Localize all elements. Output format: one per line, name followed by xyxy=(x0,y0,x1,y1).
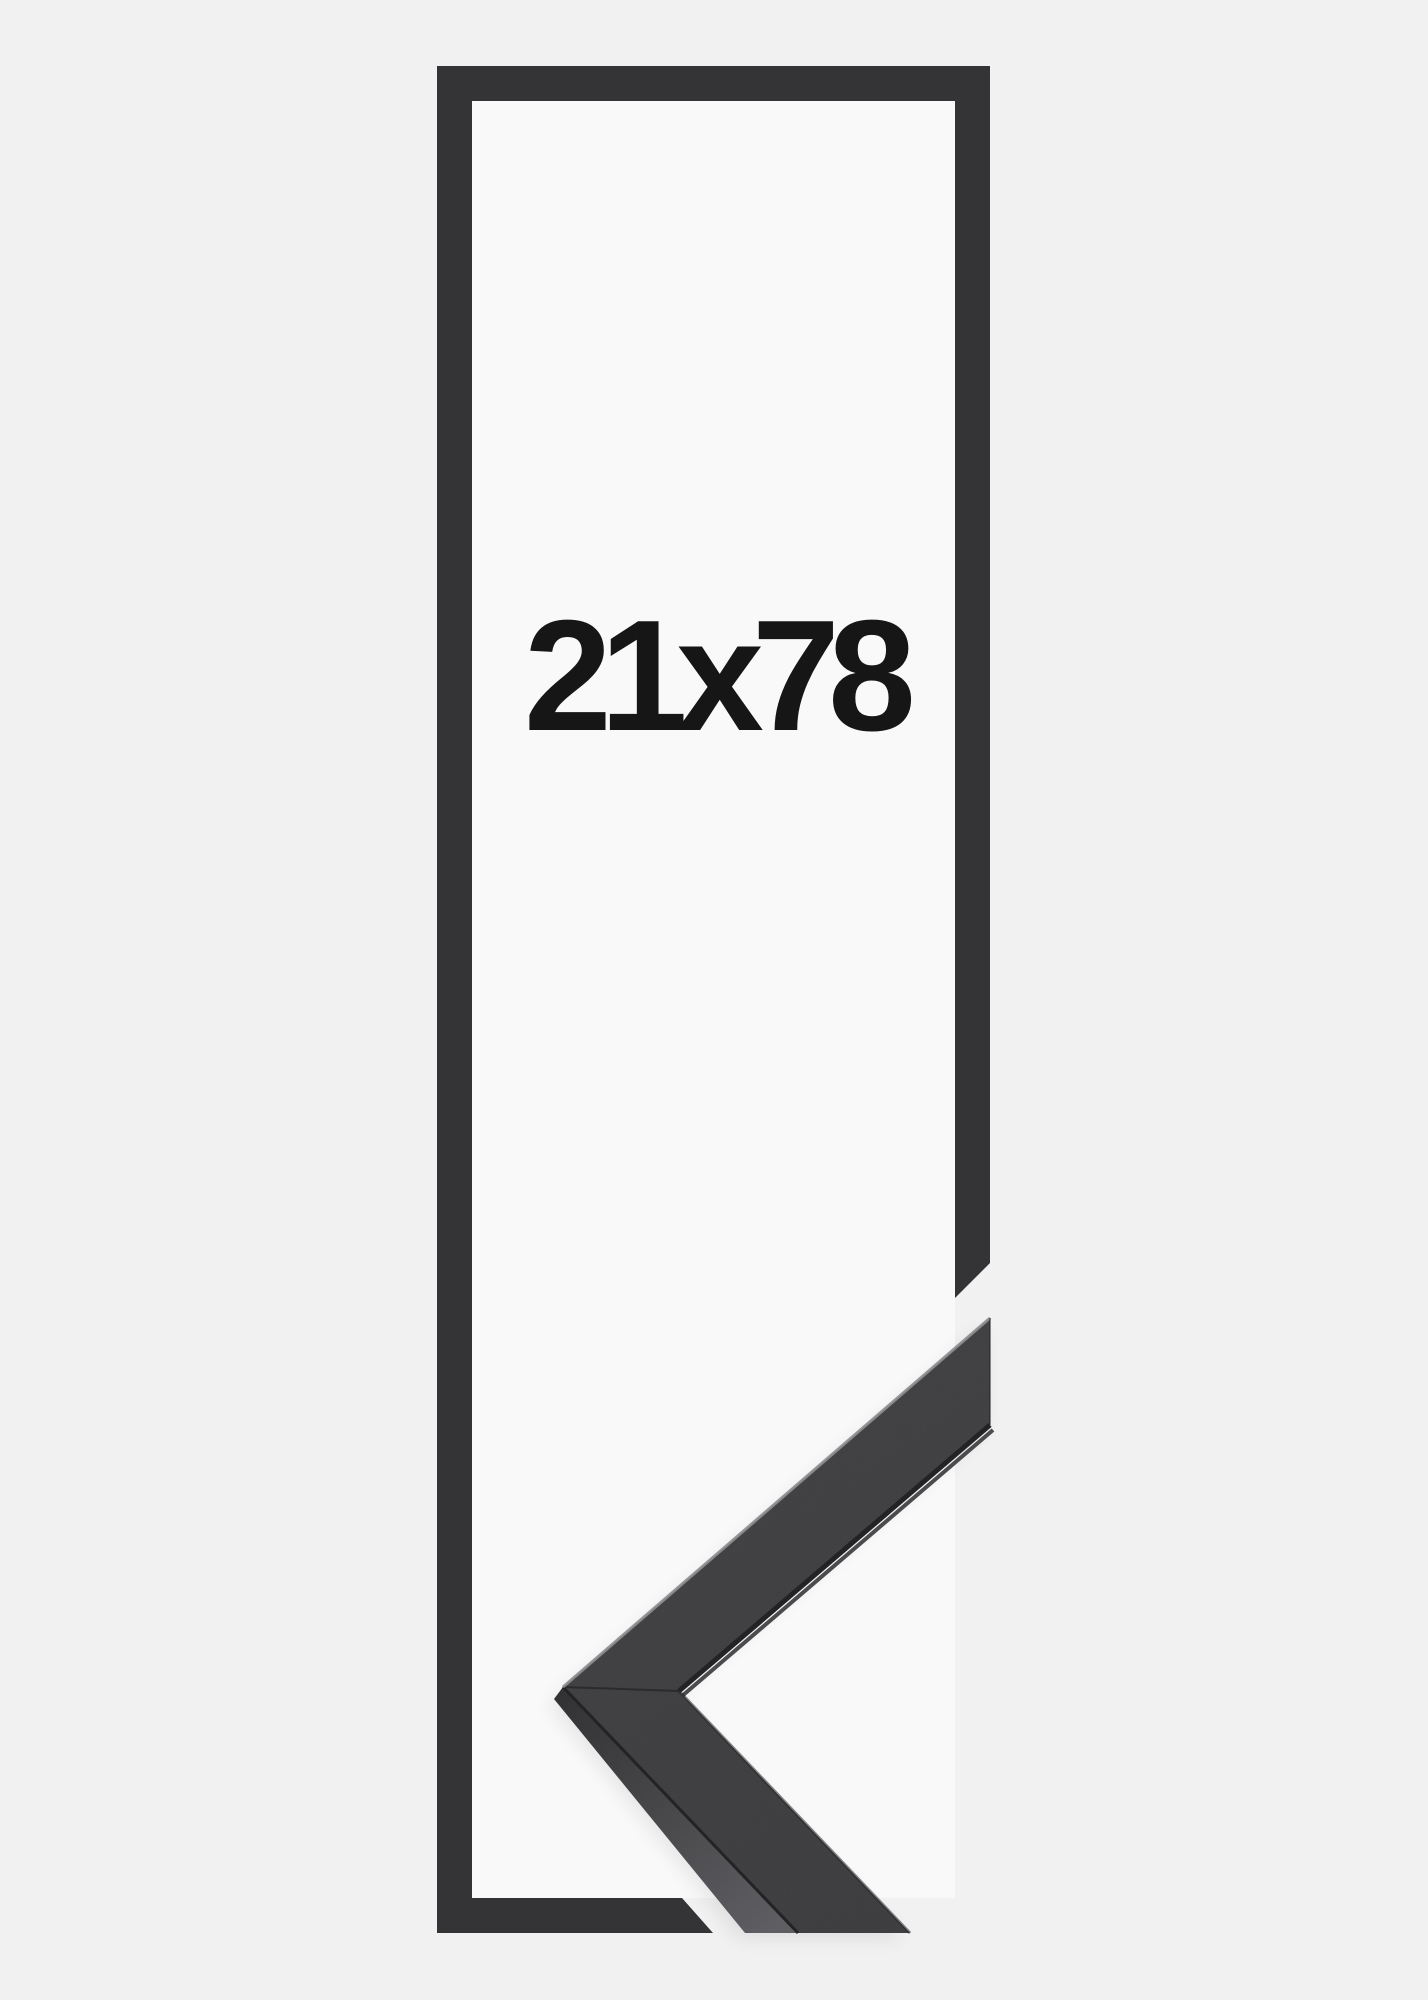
product-image: 21x78 xyxy=(0,0,1428,2000)
frame-illustration xyxy=(0,0,1428,2000)
size-label: 21x78 xyxy=(0,597,1428,755)
